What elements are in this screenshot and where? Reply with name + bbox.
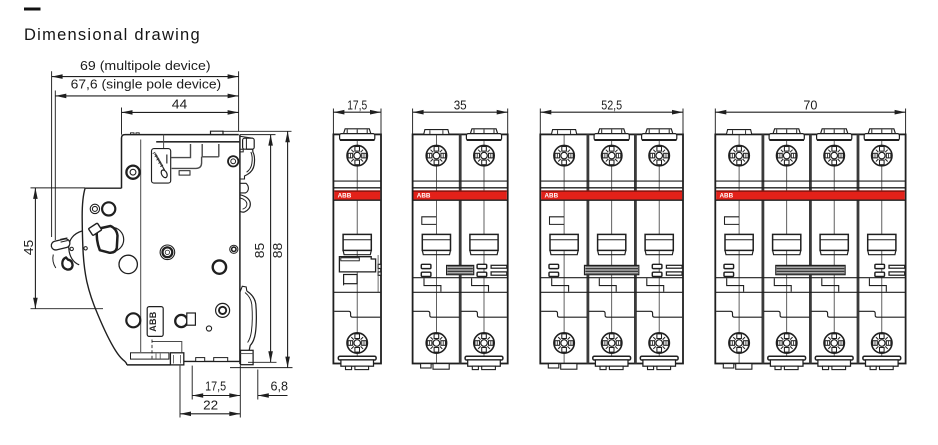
svg-text:67,6 (single pole device): 67,6 (single pole device): [71, 77, 222, 92]
svg-text:ABB: ABB: [148, 311, 158, 332]
svg-text:ABB: ABB: [720, 193, 734, 200]
svg-text:35: 35: [454, 97, 467, 112]
svg-text:ABB: ABB: [338, 193, 352, 200]
svg-text:52,5: 52,5: [601, 97, 622, 112]
svg-text:44: 44: [172, 97, 188, 112]
svg-text:ABB: ABB: [417, 193, 431, 200]
svg-text:22: 22: [203, 398, 218, 413]
svg-text:88: 88: [270, 243, 285, 259]
svg-text:Dimensional drawing: Dimensional drawing: [24, 26, 201, 44]
svg-text:85: 85: [252, 243, 267, 259]
svg-text:ABB: ABB: [545, 193, 559, 200]
svg-text:17,5: 17,5: [347, 97, 367, 112]
svg-text:45: 45: [21, 240, 36, 256]
svg-text:6,8: 6,8: [271, 379, 289, 394]
svg-text:69 (multipole device): 69 (multipole device): [80, 58, 211, 73]
svg-text:17,5: 17,5: [205, 379, 226, 394]
svg-text:70: 70: [803, 97, 817, 112]
